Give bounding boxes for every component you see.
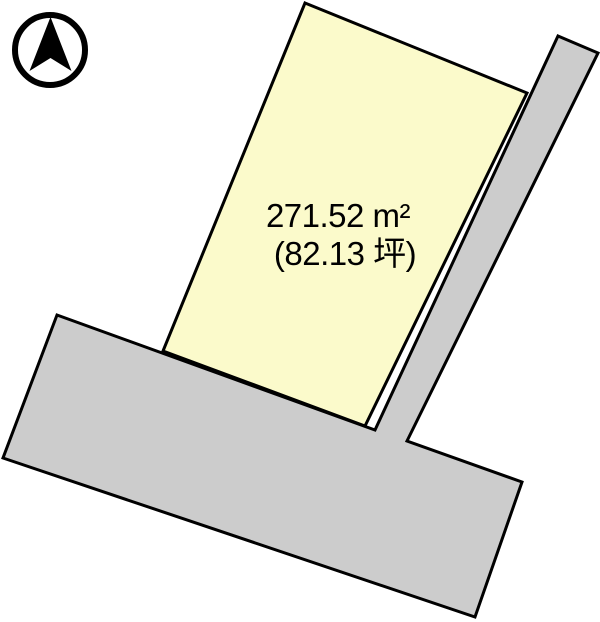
diagram-canvas: 271.52 m² (82.13 坪) (0, 0, 600, 622)
area-label-tsubo: (82.13 坪) (274, 235, 416, 272)
land-plot-diagram: 271.52 m² (82.13 坪) (0, 0, 600, 622)
area-label-sqm: 271.52 m² (266, 197, 411, 234)
north-arrow-icon (30, 17, 72, 71)
north-compass (15, 15, 85, 85)
